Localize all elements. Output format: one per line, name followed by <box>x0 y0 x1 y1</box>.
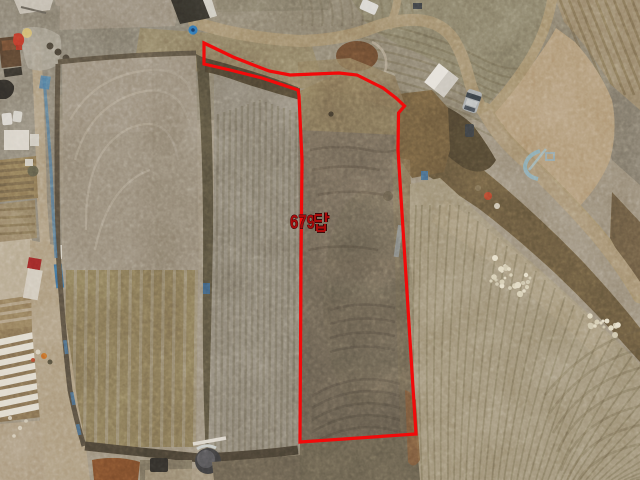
svg-text:679: 679 <box>290 212 315 234</box>
